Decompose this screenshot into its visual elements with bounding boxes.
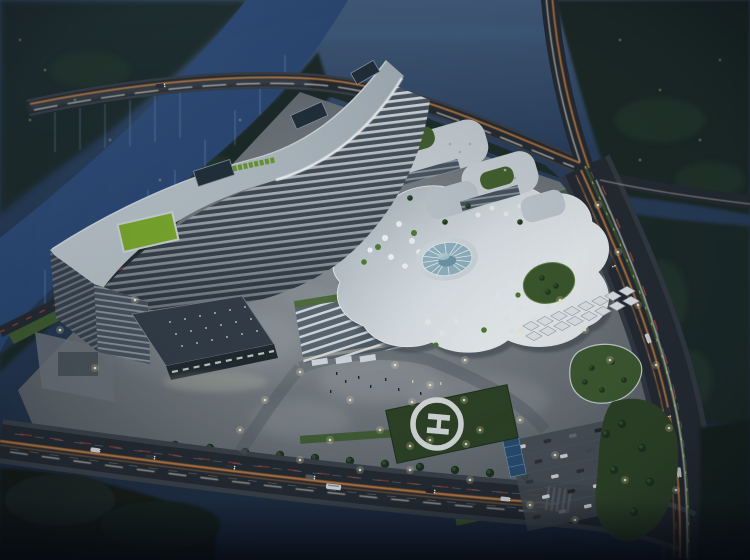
bottom-shadow [0, 500, 750, 560]
hospital-campus-rendering: H [0, 0, 750, 560]
aerial-night-rendering: H [0, 0, 750, 560]
vignette [0, 0, 750, 560]
